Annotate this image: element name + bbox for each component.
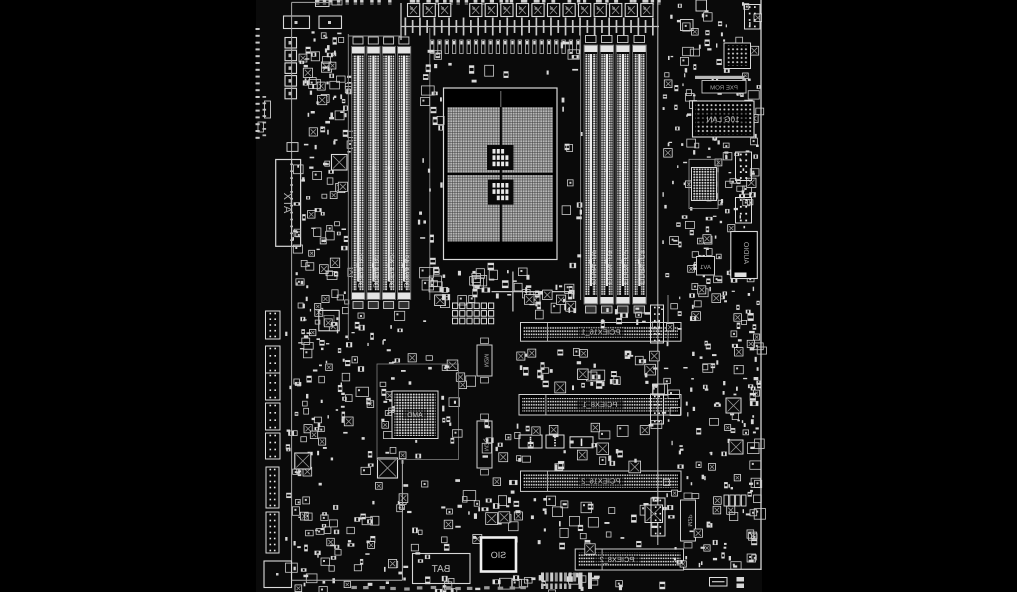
svg-text:DDR4_A2: DDR4_A2 [387, 254, 396, 288]
svg-text:DDR4_A1: DDR4_A1 [402, 254, 411, 288]
svg-text:SIO: SIO [491, 550, 507, 560]
svg-text:DDR4_C1: DDR4_C1 [637, 250, 646, 284]
svg-text:PCIEX8_1: PCIEX8_1 [582, 400, 617, 409]
svg-text:10G LAN: 10G LAN [706, 115, 739, 124]
svg-text:PXE ROM: PXE ROM [710, 85, 738, 92]
svg-text:DDR4_D2: DDR4_D2 [589, 250, 598, 284]
svg-text:BAT: BAT [432, 564, 451, 575]
svg-text:M2Q: M2Q [483, 438, 490, 451]
svg-text:PCIEX16_2: PCIEX16_2 [581, 477, 620, 486]
svg-text:M2P: M2P [686, 514, 693, 526]
svg-text:PCIEX8_2: PCIEX8_2 [599, 555, 634, 564]
svg-text:DDR4_D1: DDR4_D1 [605, 250, 614, 284]
svg-text:AUDIO: AUDIO [742, 241, 749, 264]
svg-text:ATX: ATX [281, 192, 293, 213]
svg-text:PCIEX16_1: PCIEX16_1 [581, 327, 620, 336]
svg-text:M2M: M2M [483, 354, 490, 367]
svg-text:DDR4_B1: DDR4_B1 [372, 254, 381, 288]
svg-text:DDR4_B2: DDR4_B2 [356, 254, 365, 288]
svg-text:AV1: AV1 [699, 264, 711, 271]
svg-text:AMD: AMD [407, 412, 423, 419]
svg-text:DDR4_C2: DDR4_C2 [621, 250, 630, 284]
